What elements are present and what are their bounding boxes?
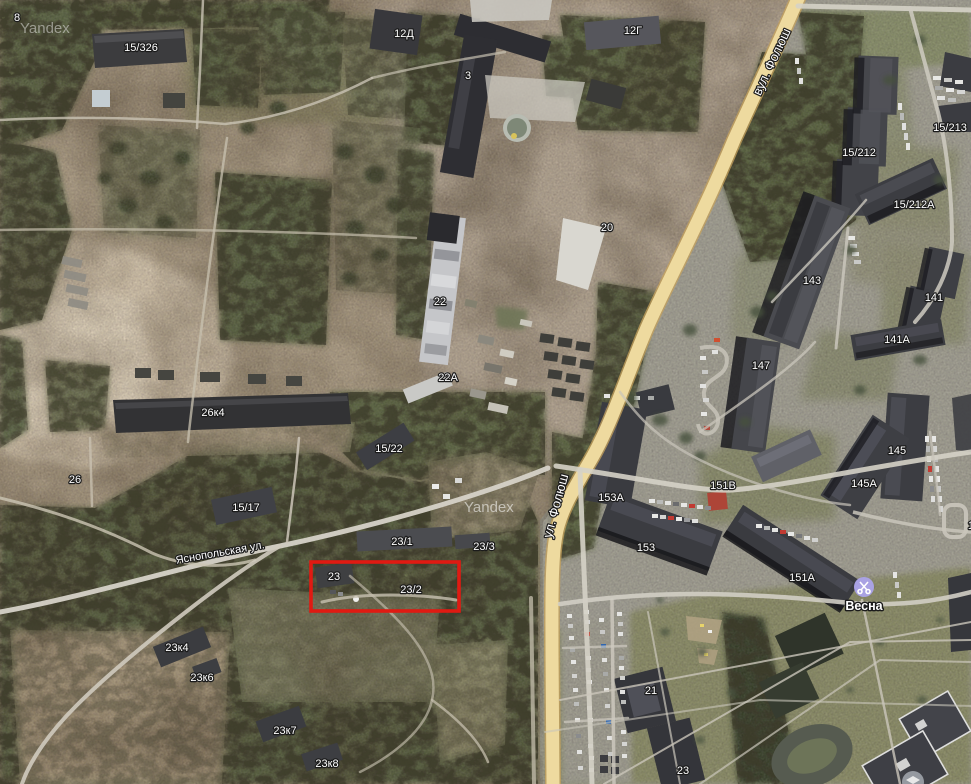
svg-text:15/212А: 15/212А xyxy=(894,199,936,211)
svg-text:22: 22 xyxy=(434,296,446,308)
svg-text:147: 147 xyxy=(752,360,770,372)
svg-text:21: 21 xyxy=(645,685,657,697)
svg-text:23к8: 23к8 xyxy=(315,758,338,770)
svg-text:20: 20 xyxy=(601,222,613,234)
svg-text:12Г: 12Г xyxy=(624,25,642,37)
svg-text:26к4: 26к4 xyxy=(201,407,224,419)
svg-text:23: 23 xyxy=(677,765,689,777)
svg-text:Весна: Весна xyxy=(845,599,883,613)
svg-text:23к7: 23к7 xyxy=(273,725,296,737)
svg-text:23/2: 23/2 xyxy=(400,584,421,596)
svg-text:143: 143 xyxy=(803,275,821,287)
svg-text:3: 3 xyxy=(465,70,471,82)
svg-text:15/212: 15/212 xyxy=(842,147,876,159)
svg-text:153А: 153А xyxy=(598,492,624,504)
svg-text:23к6: 23к6 xyxy=(190,672,213,684)
svg-text:145А: 145А xyxy=(851,478,877,490)
svg-text:15/17: 15/17 xyxy=(232,502,260,514)
svg-text:Yandex: Yandex xyxy=(464,499,514,516)
svg-text:15/22: 15/22 xyxy=(375,443,403,455)
svg-text:153: 153 xyxy=(637,542,655,554)
svg-text:151А: 151А xyxy=(789,572,815,584)
svg-text:141: 141 xyxy=(925,292,943,304)
svg-text:22А: 22А xyxy=(438,372,458,384)
svg-text:23к4: 23к4 xyxy=(165,642,188,654)
svg-text:141А: 141А xyxy=(884,334,910,346)
svg-text:23/1: 23/1 xyxy=(391,536,412,548)
svg-text:151В: 151В xyxy=(710,480,736,492)
svg-text:23: 23 xyxy=(328,571,340,583)
svg-text:15/326: 15/326 xyxy=(124,42,158,54)
svg-text:12Д: 12Д xyxy=(394,28,414,40)
svg-text:15/213: 15/213 xyxy=(933,122,967,134)
svg-text:Yandex: Yandex xyxy=(20,20,70,37)
svg-text:145: 145 xyxy=(888,445,906,457)
svg-text:26: 26 xyxy=(69,474,81,486)
svg-text:23/3: 23/3 xyxy=(473,541,494,553)
